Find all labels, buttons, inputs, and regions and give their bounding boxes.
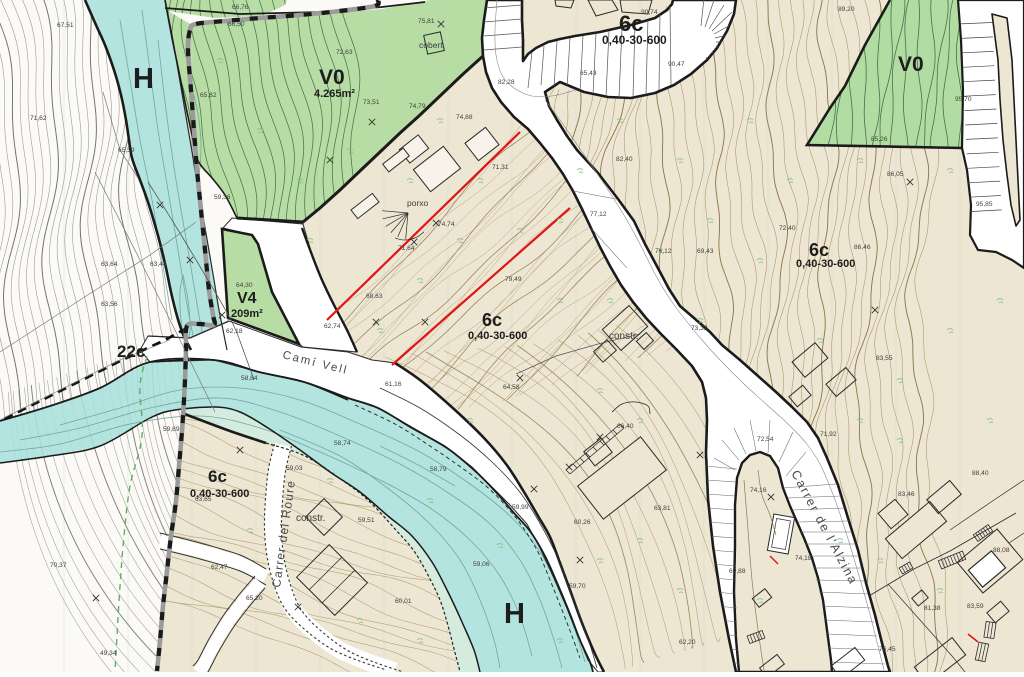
svg-text:cobert: cobert bbox=[419, 40, 443, 50]
svg-text:66,76: 66,76 bbox=[232, 4, 249, 11]
svg-text:65,20: 65,20 bbox=[246, 595, 263, 602]
svg-text:74,79: 74,79 bbox=[409, 103, 426, 110]
svg-text:70,37: 70,37 bbox=[50, 562, 67, 569]
svg-text:H: H bbox=[133, 63, 154, 95]
svg-text:V0: V0 bbox=[898, 53, 924, 76]
svg-text:58,74: 58,74 bbox=[334, 440, 351, 447]
svg-text:72,54: 72,54 bbox=[757, 436, 774, 443]
svg-text:73,51: 73,51 bbox=[363, 99, 380, 106]
svg-text:74,88: 74,88 bbox=[456, 114, 473, 121]
svg-text:63,81: 63,81 bbox=[654, 505, 671, 512]
svg-text:74,74: 74,74 bbox=[438, 221, 455, 228]
svg-text:0,40-30-600: 0,40-30-600 bbox=[468, 330, 527, 342]
svg-text:6c: 6c bbox=[482, 310, 502, 330]
svg-text:63,64: 63,64 bbox=[101, 261, 118, 268]
svg-text:209m²: 209m² bbox=[231, 308, 263, 320]
svg-text:64,58: 64,58 bbox=[503, 384, 520, 391]
svg-text:88,08: 88,08 bbox=[993, 547, 1010, 554]
svg-text:59,69: 59,69 bbox=[163, 426, 180, 433]
svg-text:75,81: 75,81 bbox=[418, 18, 435, 25]
svg-text:6c: 6c bbox=[208, 467, 227, 486]
svg-text:62,74: 62,74 bbox=[324, 323, 341, 330]
svg-text:62,18: 62,18 bbox=[226, 328, 243, 335]
svg-text:63,65: 63,65 bbox=[195, 496, 212, 503]
svg-text:79,49: 79,49 bbox=[505, 276, 522, 283]
svg-text:73,32: 73,32 bbox=[691, 325, 708, 332]
svg-text:81,38: 81,38 bbox=[924, 605, 941, 612]
svg-text:82,28: 82,28 bbox=[498, 79, 515, 86]
svg-text:H: H bbox=[504, 598, 525, 630]
svg-text:V4: V4 bbox=[237, 290, 257, 307]
svg-text:63,56: 63,56 bbox=[101, 301, 118, 308]
svg-text:60,01: 60,01 bbox=[395, 598, 412, 605]
svg-text:66,50: 66,50 bbox=[228, 21, 245, 28]
svg-text:90,47: 90,47 bbox=[668, 61, 685, 68]
svg-text:74,18: 74,18 bbox=[795, 555, 812, 562]
svg-text:71,92: 71,92 bbox=[820, 431, 837, 438]
svg-text:86,46: 86,46 bbox=[854, 244, 871, 251]
svg-text:59,51: 59,51 bbox=[358, 517, 375, 524]
svg-text:65,59: 65,59 bbox=[118, 147, 135, 154]
svg-text:77,12: 77,12 bbox=[590, 211, 607, 218]
svg-text:88,40: 88,40 bbox=[972, 470, 989, 477]
svg-text:71,62: 71,62 bbox=[30, 115, 47, 122]
svg-text:71,31: 71,31 bbox=[492, 164, 509, 171]
svg-text:0,40-30-600: 0,40-30-600 bbox=[602, 33, 667, 47]
svg-text:6c: 6c bbox=[809, 240, 829, 260]
svg-text:71,64: 71,64 bbox=[398, 245, 415, 252]
svg-text:72,63: 72,63 bbox=[336, 49, 353, 56]
svg-text:66,40: 66,40 bbox=[617, 423, 634, 430]
svg-text:59,06: 59,06 bbox=[473, 561, 490, 568]
svg-text:89,20: 89,20 bbox=[838, 6, 855, 13]
svg-text:59,36: 59,36 bbox=[214, 194, 231, 201]
svg-text:constr.: constr. bbox=[296, 513, 325, 524]
svg-text:60,26: 60,26 bbox=[574, 519, 591, 526]
svg-text:63,44: 63,44 bbox=[150, 261, 167, 268]
svg-text:61,16: 61,16 bbox=[385, 381, 402, 388]
svg-text:83,55: 83,55 bbox=[876, 355, 893, 362]
svg-text:V0: V0 bbox=[319, 66, 345, 89]
svg-text:4.265m²: 4.265m² bbox=[314, 88, 355, 100]
svg-text:67,51: 67,51 bbox=[57, 22, 74, 29]
svg-text:58,84: 58,84 bbox=[241, 375, 258, 382]
svg-text:49,34: 49,34 bbox=[100, 650, 117, 657]
svg-text:22c: 22c bbox=[117, 342, 145, 361]
svg-text:95,85: 95,85 bbox=[976, 201, 993, 208]
svg-text:82,40: 82,40 bbox=[616, 156, 633, 163]
svg-text:59,03: 59,03 bbox=[286, 465, 303, 472]
svg-text:65,82: 65,82 bbox=[200, 92, 217, 99]
svg-text:0,40-30-600: 0,40-30-600 bbox=[796, 258, 855, 270]
svg-text:72,40: 72,40 bbox=[779, 225, 796, 232]
svg-text:90,74: 90,74 bbox=[641, 9, 658, 16]
svg-text:68,63: 68,63 bbox=[366, 293, 383, 300]
svg-text:69,88: 69,88 bbox=[729, 568, 746, 575]
svg-text:62,20: 62,20 bbox=[679, 639, 696, 646]
svg-text:constr.: constr. bbox=[609, 331, 638, 342]
svg-text:64,30: 64,30 bbox=[236, 282, 253, 289]
svg-text:59,70: 59,70 bbox=[569, 583, 586, 590]
svg-text:porxo: porxo bbox=[407, 198, 429, 208]
svg-text:86,05: 86,05 bbox=[887, 171, 904, 178]
svg-text:95,70: 95,70 bbox=[955, 96, 972, 103]
svg-text:62,47: 62,47 bbox=[211, 564, 228, 571]
svg-text:85,26: 85,26 bbox=[871, 136, 888, 143]
svg-text:83,59: 83,59 bbox=[967, 603, 984, 610]
svg-text:59,99: 59,99 bbox=[512, 504, 529, 511]
svg-text:76,45: 76,45 bbox=[879, 646, 896, 653]
svg-text:58,79: 58,79 bbox=[430, 466, 447, 473]
svg-text:69,43: 69,43 bbox=[697, 248, 714, 255]
svg-text:83,46: 83,46 bbox=[898, 491, 915, 498]
svg-text:74,16: 74,16 bbox=[750, 487, 767, 494]
svg-text:65,43: 65,43 bbox=[580, 70, 597, 77]
